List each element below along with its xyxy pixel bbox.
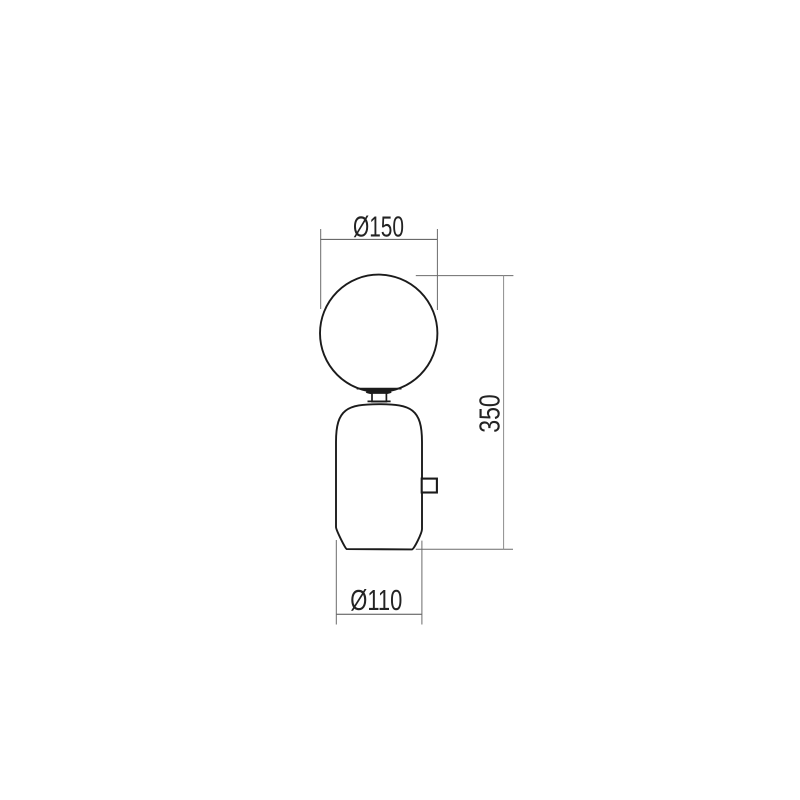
svg-text:Ø110: Ø110	[350, 585, 402, 617]
svg-text:350: 350	[474, 394, 506, 433]
svg-text:Ø150: Ø150	[353, 212, 404, 244]
